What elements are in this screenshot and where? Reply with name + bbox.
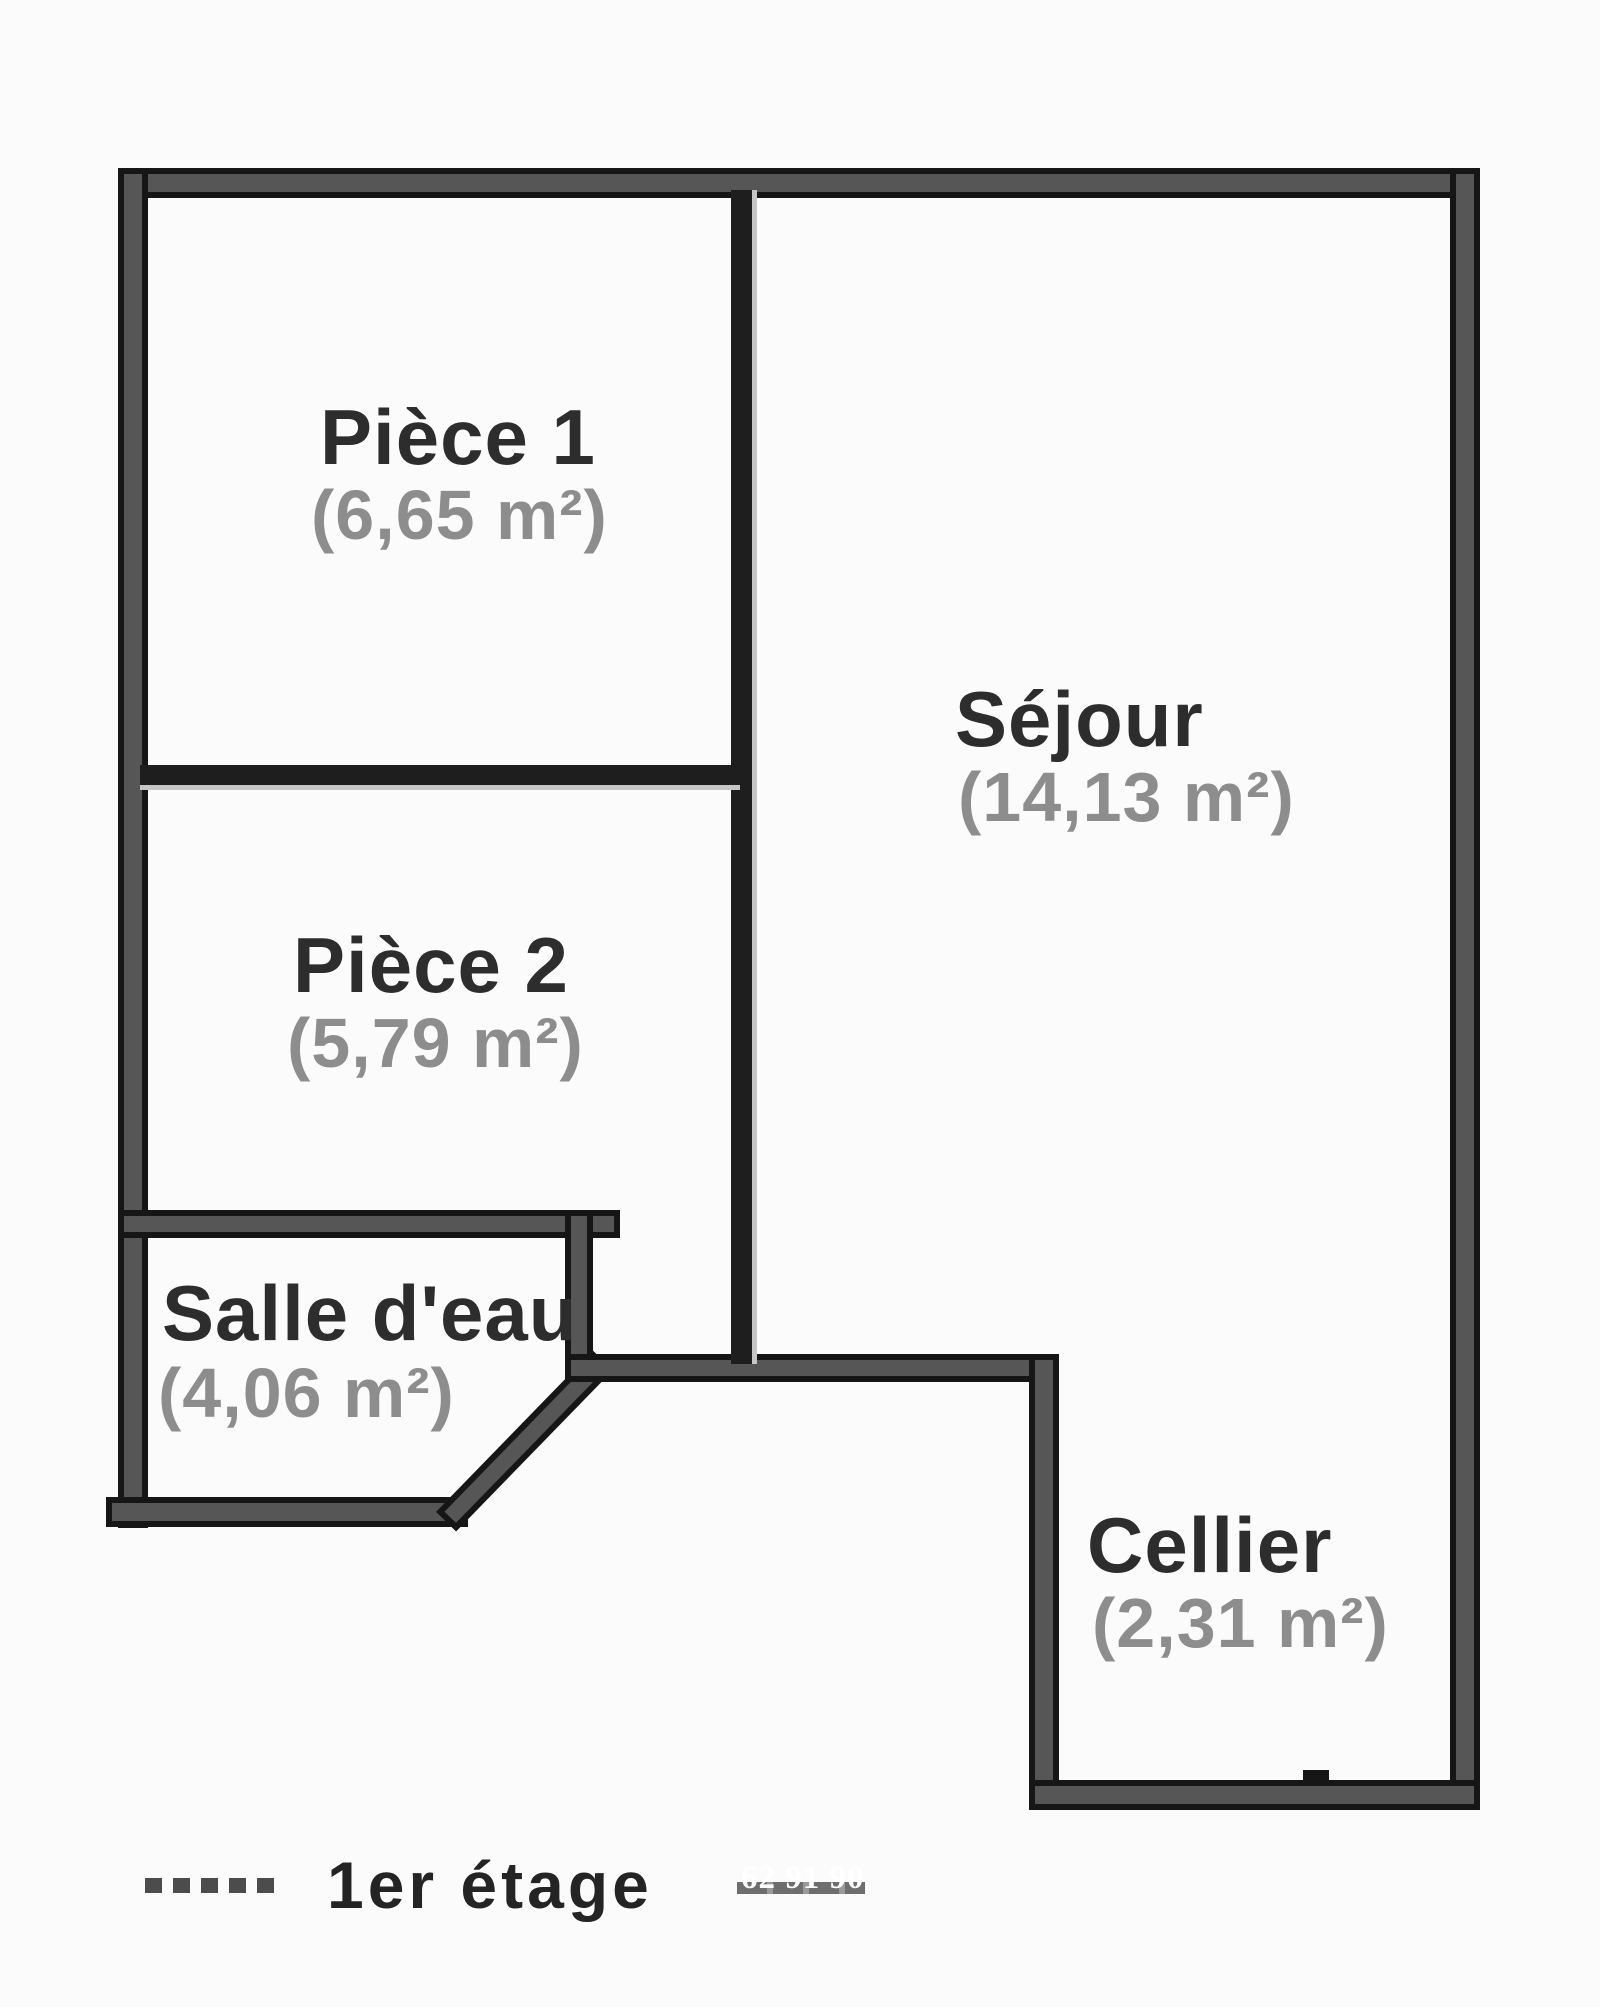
room-label-piece1: Pièce 1 [320,398,596,476]
room-label-sejour: Séjour [955,680,1204,758]
room-label-piece2: Pièce 2 [293,926,569,1004]
legend-dash-line [145,1878,279,1893]
room-label-cellier: Cellier [1087,1506,1332,1584]
wall-exterior-left [118,168,148,1528]
wall-salle-deau-top [118,1210,620,1238]
wall-sejour-south [565,1354,1059,1382]
partition-piece1-piece2 [140,765,740,790]
wall-salle-deau-bottom [106,1497,468,1527]
room-area-piece2: (5,79 m²) [287,1008,584,1078]
room-area-salle-deau: (4,06 m²) [158,1358,455,1428]
watermark-number: 62 91 90 [741,1862,865,1895]
wall-cellier-left [1029,1354,1059,1810]
room-area-cellier: (2,31 m²) [1092,1588,1389,1658]
legend-floor-label: 1er étage [327,1852,653,1918]
room-label-salle-deau: Salle d'eau [162,1274,577,1352]
floor-plan: Pièce 1 (6,65 m²) Pièce 2 (5,79 m²) Séjo… [0,0,1600,2007]
wall-exterior-top [118,168,1480,198]
wall-joint-notch [1303,1770,1329,1786]
wall-exterior-right [1450,168,1480,1810]
room-area-piece1: (6,65 m²) [311,480,608,550]
room-area-sejour: (14,13 m²) [958,762,1295,832]
wall-cellier-bottom [1029,1780,1480,1810]
